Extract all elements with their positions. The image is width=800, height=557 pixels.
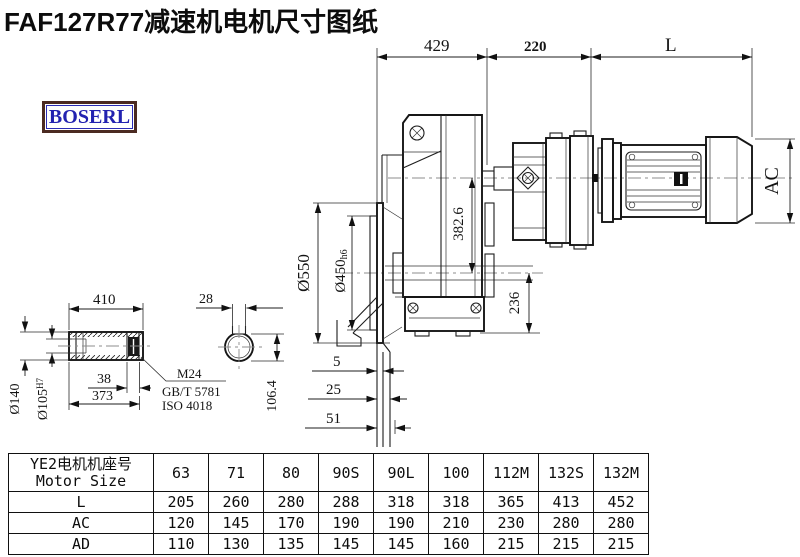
cell-AD-90l: 145 <box>374 534 429 555</box>
dim-label-105: Ø105H7 <box>35 377 51 420</box>
note-std2: ISO 4018 <box>162 398 212 413</box>
drawing-page: FAF127R77减速机电机尺寸图纸 BOSERL <box>0 0 800 557</box>
cell-AD-80: 135 <box>264 534 319 555</box>
column-90s: 90S <box>319 454 374 492</box>
cell-L-100: 318 <box>429 492 484 513</box>
cell-L-132m: 452 <box>594 492 649 513</box>
dim-label-25: 25 <box>326 382 341 398</box>
cell-AC-90s: 190 <box>319 513 374 534</box>
dim-236: 236 <box>480 273 540 333</box>
cell-L-63: 205 <box>154 492 209 513</box>
column-90l: 90L <box>374 454 429 492</box>
dim-label-5: 5 <box>333 354 341 370</box>
cell-AD-71: 130 <box>209 534 264 555</box>
dim-label-382-6: 382.6 <box>451 207 467 241</box>
note-thread: M24 <box>177 366 202 381</box>
dim-label-429: 429 <box>424 36 450 55</box>
cell-AC-132m: 280 <box>594 513 649 534</box>
note-std1: GB/T 5781 <box>162 384 221 399</box>
dim-label-450: Ø450h6 <box>333 249 350 292</box>
cell-AD-132s: 215 <box>539 534 594 555</box>
dim-label-220: 220 <box>524 39 547 55</box>
cell-L-90l: 318 <box>374 492 429 513</box>
dim-label-410: 410 <box>93 292 116 308</box>
cell-L-132s: 413 <box>539 492 594 513</box>
cell-AC-71: 145 <box>209 513 264 534</box>
row-label-AD: AD <box>9 534 154 555</box>
motor-size-header: YE2电机机座号 Motor Size <box>9 454 154 492</box>
table-header-row: YE2电机机座号 Motor Size 63 71 80 90S 90L 100… <box>9 454 649 492</box>
column-71: 71 <box>209 454 264 492</box>
cell-L-80: 280 <box>264 492 319 513</box>
dim-label-AC: AC <box>761 167 783 195</box>
dim-label-28: 28 <box>199 292 213 307</box>
cell-L-90s: 288 <box>319 492 374 513</box>
motor-size-table: YE2电机机座号 Motor Size 63 71 80 90S 90L 100… <box>8 453 649 555</box>
cell-AC-90l: 190 <box>374 513 429 534</box>
motor <box>592 137 752 223</box>
dim-label-140: Ø140 <box>8 383 23 414</box>
cell-AC-63: 120 <box>154 513 209 534</box>
table-row-AC: AC 120 145 170 190 190 210 230 280 280 <box>9 513 649 534</box>
dim-ac: AC <box>755 139 795 223</box>
cell-AD-63: 110 <box>154 534 209 555</box>
dim-382-6: 382.6 <box>451 178 472 273</box>
cell-AC-80: 170 <box>264 513 319 534</box>
dim-flange-offsets: 5 25 51 <box>305 354 411 434</box>
dim-label-550: Ø550 <box>294 254 313 292</box>
dim-label-38: 38 <box>97 372 111 387</box>
column-100: 100 <box>429 454 484 492</box>
column-112m: 112M <box>484 454 539 492</box>
column-132m: 132M <box>594 454 649 492</box>
column-132s: 132S <box>539 454 594 492</box>
shaft-detail: 410 Ø140 Ø105H7 38 373 <box>8 292 226 420</box>
gearbox-housing <box>393 115 494 336</box>
dim-label-106-4: 106.4 <box>265 380 280 412</box>
column-63: 63 <box>154 454 209 492</box>
cell-AD-90s: 145 <box>319 534 374 555</box>
cell-AD-100: 160 <box>429 534 484 555</box>
dim-label-L: L <box>665 35 677 56</box>
dim-label-51: 51 <box>326 411 341 427</box>
column-80: 80 <box>264 454 319 492</box>
input-adapter <box>482 131 593 249</box>
output-flange <box>337 155 403 447</box>
cell-L-71: 260 <box>209 492 264 513</box>
dim-label-236: 236 <box>507 291 523 314</box>
cell-L-112m: 365 <box>484 492 539 513</box>
dim-label-373: 373 <box>92 389 113 404</box>
cell-AC-100: 210 <box>429 513 484 534</box>
row-label-L: L <box>9 492 154 513</box>
table-row-AD: AD 110 130 135 145 145 160 215 215 215 <box>9 534 649 555</box>
cell-AD-132m: 215 <box>594 534 649 555</box>
cell-AC-132s: 280 <box>539 513 594 534</box>
row-label-AC: AC <box>9 513 154 534</box>
centerlines <box>340 178 796 280</box>
cell-AC-112m: 230 <box>484 513 539 534</box>
table-row-L: L 205 260 280 288 318 318 365 413 452 <box>9 492 649 513</box>
cell-AD-112m: 215 <box>484 534 539 555</box>
